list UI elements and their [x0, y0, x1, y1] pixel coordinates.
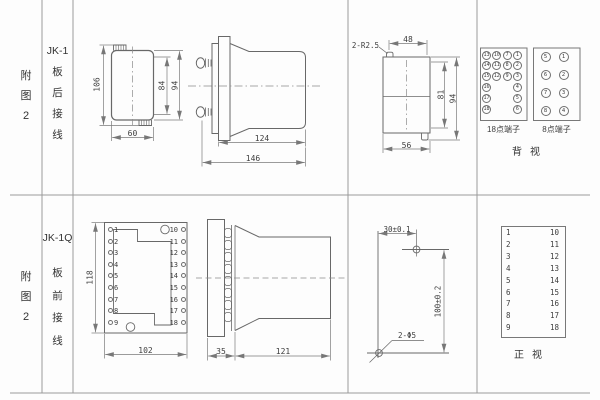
terminal18-5: 5 — [513, 94, 522, 103]
dim-drill-horizontal: 30±0.1 — [372, 225, 422, 234]
table-num-right-18: 18 — [537, 323, 559, 333]
terminal8-1: 1 — [559, 52, 569, 62]
dim-side-body-depth: 124 — [242, 134, 282, 143]
table-num-right-10: 10 — [537, 228, 559, 238]
plate-num-left-7: 7 — [114, 295, 128, 305]
plate-dot-left-1 — [108, 227, 113, 232]
plate-dot-left-9 — [108, 320, 113, 325]
terminal18-1: 1 — [513, 51, 522, 60]
terminal8-3: 3 — [559, 88, 569, 98]
terminal18-8: 8 — [503, 61, 512, 70]
table-num-left-7: 7 — [506, 299, 520, 309]
terminal18-18: 18 — [482, 105, 491, 114]
plate-num-right-15: 15 — [161, 283, 178, 293]
terminal8-2: 2 — [559, 70, 569, 80]
table-num-left-1: 1 — [506, 228, 520, 238]
figure-label-row1: 附图2 — [19, 66, 33, 126]
terminal8-7: 7 — [541, 88, 551, 98]
table-num-right-14: 14 — [537, 276, 559, 286]
plate-dot-right-11 — [181, 239, 186, 244]
dim-side-total-depth: 146 — [233, 154, 273, 163]
jk1-case-back-view — [379, 47, 430, 140]
dim-front-total-height: 106 — [92, 70, 101, 100]
plate-num-left-9: 9 — [114, 318, 128, 328]
table-num-left-8: 8 — [506, 311, 520, 321]
plate-dot-left-8 — [108, 308, 113, 313]
table-grid — [10, 0, 590, 393]
jk1q-side-view — [196, 220, 345, 337]
dim-plate-width: 102 — [126, 346, 166, 355]
label-block18: 18点端子 — [474, 124, 534, 135]
table-num-right-11: 11 — [537, 240, 559, 250]
label-drill-holes: 2-Φ5 — [387, 331, 427, 340]
plate-num-right-11: 11 — [161, 237, 178, 247]
plate-dot-left-7 — [108, 297, 113, 302]
dim-front-inner-height: 84 — [157, 71, 166, 101]
dim-plate-height: 118 — [85, 263, 94, 293]
dim-case-top-width: 48 — [393, 35, 423, 44]
plate-num-right-17: 17 — [161, 306, 178, 316]
figure-label-row2: 附图2 — [19, 267, 33, 327]
dim-side2-body-depth: 121 — [263, 347, 303, 356]
drawing-canvas — [0, 0, 600, 400]
label-front-view: 正视 — [514, 346, 584, 361]
wiring-label-row1: 板后接线 — [51, 62, 64, 146]
label-corner-radius: 2-R2.5 — [339, 41, 379, 50]
table-num-left-5: 5 — [506, 276, 520, 286]
terminal8-5: 5 — [541, 52, 551, 62]
technical-drawing-page: 附图2 JK-1 板后接线 106 84 94 60 124 146 2-R2.… — [0, 0, 600, 400]
plate-num-right-10: 10 — [161, 225, 178, 235]
label-back-view: 背视 — [512, 143, 582, 158]
plate-num-left-2: 2 — [114, 237, 128, 247]
table-num-left-6: 6 — [506, 288, 520, 298]
terminal8-8: 8 — [541, 106, 551, 116]
plate-dot-left-3 — [108, 250, 113, 255]
table-num-right-15: 15 — [537, 288, 559, 298]
table-num-left-3: 3 — [506, 252, 520, 262]
plate-num-left-8: 8 — [114, 306, 128, 316]
table-num-right-12: 12 — [537, 252, 559, 262]
terminal18-6: 6 — [513, 105, 522, 114]
table-num-left-9: 9 — [506, 323, 520, 333]
plate-dot-left-2 — [108, 239, 113, 244]
dim-drill-vertical: 100±0.2 — [434, 276, 443, 326]
jk1-front-view — [112, 45, 154, 126]
model-label-jk1: JK-1 — [42, 45, 73, 57]
jk1-side-view — [188, 37, 321, 141]
plate-num-left-6: 6 — [114, 283, 128, 293]
plate-num-left-5: 5 — [114, 271, 128, 281]
terminal8-6: 6 — [541, 70, 551, 80]
plate-dot-right-17 — [181, 308, 186, 313]
plate-dot-right-13 — [181, 262, 186, 267]
dim-front-outer-height: 94 — [171, 71, 180, 101]
plate-dot-left-4 — [108, 262, 113, 267]
plate-dot-left-6 — [108, 285, 113, 290]
plate-num-right-16: 16 — [161, 295, 178, 305]
plate-dot-right-10 — [181, 227, 186, 232]
label-block8: 8点端子 — [527, 124, 587, 135]
dim-side2-plate-depth: 35 — [206, 347, 236, 356]
terminal18-9: 9 — [503, 72, 512, 81]
model-label-jk1q: JK-1Q — [42, 232, 73, 244]
plate-dot-left-5 — [108, 273, 113, 278]
terminal18-13: 13 — [482, 51, 491, 60]
dim-case-outer-height: 94 — [448, 83, 457, 113]
plate-dot-right-15 — [181, 285, 186, 290]
terminal8-4: 4 — [559, 106, 569, 116]
table-num-left-2: 2 — [506, 240, 520, 250]
plate-num-left-1: 1 — [114, 225, 128, 235]
plate-num-left-4: 4 — [114, 260, 128, 270]
plate-num-right-18: 18 — [161, 318, 178, 328]
table-num-right-17: 17 — [537, 311, 559, 321]
terminal18-7: 7 — [503, 51, 512, 60]
plate-num-right-14: 14 — [161, 271, 178, 281]
dim-case-bottom-width: 56 — [392, 141, 422, 150]
plate-dot-right-16 — [181, 297, 186, 302]
dim-case-inner-height: 81 — [436, 80, 445, 110]
plate-num-left-3: 3 — [114, 248, 128, 258]
plate-dot-right-12 — [181, 250, 186, 255]
dim-front-width: 60 — [118, 129, 148, 138]
table-num-right-13: 13 — [537, 264, 559, 274]
plate-num-right-12: 12 — [161, 248, 178, 258]
table-num-left-4: 4 — [506, 264, 520, 274]
table-num-right-16: 16 — [537, 299, 559, 309]
plate-dot-right-18 — [181, 320, 186, 325]
wiring-label-row2: 板前接线 — [51, 262, 64, 352]
terminal18-10: 10 — [492, 51, 501, 60]
plate-num-right-13: 13 — [161, 260, 178, 270]
plate-dot-right-14 — [181, 273, 186, 278]
